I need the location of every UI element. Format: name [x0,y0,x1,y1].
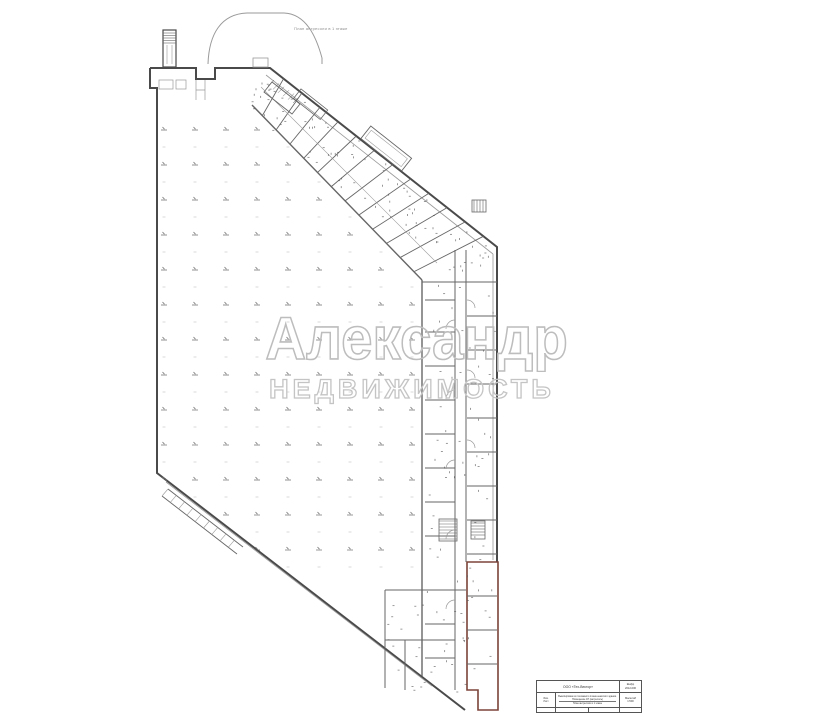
title-block-description: Выкопировка из поэтажного плана нежилого… [556,693,620,707]
title-block-scale-value: 1:500 [627,700,634,703]
title-block-footer-row [537,708,641,712]
title-block-company: ООО «Тех-Вектор» [537,681,620,692]
floor-plan-page: План антресоли в 1 этаже Александр НЕДВИ… [0,0,828,715]
title-block-list: Лист [543,700,548,703]
plan-caption: План антресоли в 1 этаже [294,26,348,31]
title-block-code: Шифр 2012-006 [620,681,641,692]
title-block-left-column: Изм. Лист [537,693,556,707]
floor-plan-svg [0,0,828,715]
title-block-code-value: 2012-006 [625,687,636,690]
title-block-description-text: Выкопировка из поэтажного плана нежилого… [557,695,618,701]
title-block: ООО «Тех-Вектор» Шифр 2012-006 Изм. Лист… [536,680,642,713]
title-block-stage-line: План антресоли в 1 этаже [559,701,617,705]
title-block-scale: Масштаб 1:500 [620,693,641,707]
